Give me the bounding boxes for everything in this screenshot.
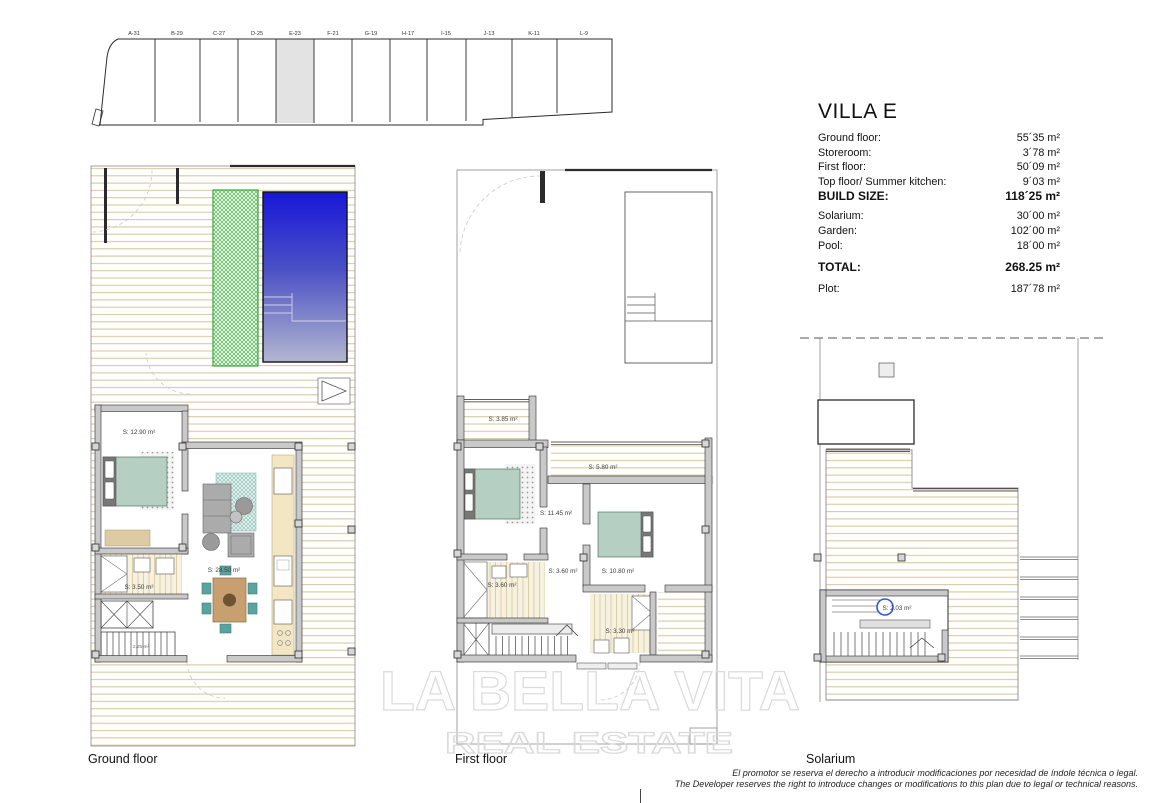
stairs (101, 632, 175, 656)
disclaimer-line-en: The Developer reserves the right to intr… (620, 779, 1138, 790)
spec-row: Plot:187´78 m² (818, 282, 1060, 297)
room-size-label: S: 3.60 m² (548, 568, 577, 575)
sink (492, 566, 506, 578)
shower (101, 556, 127, 592)
side-table (230, 511, 242, 523)
plot-label: H-17 (402, 31, 414, 37)
disclaimer: El promotor se reserva el derecho a intr… (620, 768, 1138, 789)
site-boundary (100, 39, 612, 125)
pillow (643, 536, 651, 552)
toilet (510, 564, 527, 577)
spec-value: 118´25 m² (1005, 189, 1060, 204)
spec-row-build-size: BUILD SIZE:118´25 m² (818, 189, 1060, 204)
watermark-line1: LA BELLA VITA (380, 659, 800, 722)
pergola-louvers (1020, 557, 1078, 659)
disclaimer-line-es: El promotor se reserva el derecho a intr… (620, 768, 1138, 779)
room-size-label: S: 12.90 m² (123, 429, 156, 436)
kitchen-sink (274, 556, 292, 586)
spec-value: 268.25 m² (1005, 260, 1060, 275)
side-deck (658, 592, 705, 655)
solarium-plan: S: 2.03 m² Solarium (800, 338, 1105, 766)
room-size-label: S: 11.45 m² (540, 510, 572, 517)
villa-title: VILLA E (818, 100, 1060, 124)
spec-value: 30´00 m² (1017, 209, 1060, 224)
chimney (879, 363, 894, 377)
ground-floor-plan: S: 12.90 m² S: 28.50 m² S: 3.50 m² 2.25 … (88, 166, 355, 766)
pool-void-steps (625, 293, 712, 321)
plot-label: I-15 (441, 31, 451, 37)
fridge (274, 468, 292, 494)
titleblock-border-tick (640, 789, 641, 803)
spec-row: Storeroom:3´78 m² (818, 146, 1060, 161)
gate-swing-arc (460, 176, 540, 252)
room-size-label: S: 3.30 m² (605, 628, 634, 635)
pillow (105, 482, 114, 499)
site-plan: A-31 B-29 C-27 D-25 E-23 F-21 G-19 H-17 … (92, 31, 612, 126)
spec-label: TOTAL: (818, 260, 861, 275)
plot-label: L-9 (580, 31, 588, 37)
room-size-label: S: 3.60 m² (487, 582, 516, 589)
plot-label-highlighted: E-23 (289, 31, 301, 37)
plot-label: D-25 (251, 31, 263, 37)
villa-e-plan-sheet: A-31 B-29 C-27 D-25 E-23 F-21 G-19 H-17 … (0, 0, 1170, 803)
plot-e23-highlight (276, 39, 314, 123)
lawn-area (213, 190, 258, 366)
garden-wall-stub (104, 168, 107, 243)
oven (274, 600, 292, 624)
spec-row: Ground floor:55´35 m² (818, 131, 1060, 146)
spec-label: Storeroom: (818, 146, 871, 161)
room-size-label: S: 28.50 m² (208, 567, 241, 574)
spec-label: Garden: (818, 224, 857, 239)
spec-row: Top floor/ Summer kitchen:9´03 m² (818, 175, 1060, 190)
terrace-railing (551, 442, 705, 444)
spec-value: 3´78 m² (1023, 146, 1060, 161)
room-size-label: S: 3.85 m² (488, 416, 517, 423)
armchair (228, 533, 254, 557)
spec-row: First floor:50´09 m² (818, 160, 1060, 175)
pillow (105, 461, 114, 478)
spec-label: Solarium: (818, 209, 864, 224)
pillow (465, 494, 473, 511)
plot-label: K-11 (528, 31, 539, 37)
room-size-label: S: 10.80 m² (602, 568, 635, 575)
pillow (643, 516, 651, 532)
floor-name-solarium: Solarium (806, 752, 855, 766)
shower (632, 596, 652, 630)
room-size-label: 2.25 m² (133, 644, 150, 650)
bench (105, 530, 150, 546)
sink (614, 638, 629, 653)
shower (463, 562, 487, 618)
summer-kitchen (818, 400, 914, 444)
room-size-label: S: 5.80 m² (588, 464, 617, 471)
plot-label: G-19 (365, 31, 377, 37)
watermark-line2: REAL ESTATE (445, 727, 733, 760)
floor-name-ground: Ground floor (88, 752, 157, 766)
table-centerpiece (223, 594, 236, 607)
terrace-right (551, 445, 705, 478)
room-size-label: S: 3.50 m² (124, 584, 153, 591)
spec-row: Garden:102´00 m² (818, 224, 1060, 239)
plot-label: F-21 (327, 31, 339, 37)
spec-label: Pool: (818, 239, 843, 254)
spec-rows: Ground floor:55´35 m² Storeroom:3´78 m² … (818, 131, 1060, 297)
spec-label: Plot: (818, 282, 840, 297)
spec-label: First floor: (818, 160, 866, 175)
pillow (465, 473, 473, 490)
spec-row: Solarium:30´00 m² (818, 209, 1060, 224)
plot-label: J-13 (484, 31, 495, 37)
plot-label: B-29 (171, 31, 183, 37)
pouf (203, 534, 220, 551)
spec-value: 50´09 m² (1017, 160, 1060, 175)
garden-wall-stub (176, 168, 179, 204)
plot-labels: A-31 B-29 C-27 D-25 E-23 F-21 G-19 H-17 … (128, 31, 588, 37)
spec-row: Pool:18´00 m² (818, 239, 1060, 254)
spec-value: 9´03 m² (1023, 175, 1060, 190)
toilet (594, 640, 609, 653)
stair-rail (860, 620, 930, 628)
spec-value: 18´00 m² (1017, 239, 1060, 254)
spec-label: Top floor/ Summer kitchen: (818, 175, 946, 190)
watermark: LA BELLA VITA REAL ESTATE (380, 659, 800, 760)
spec-value: 55´35 m² (1017, 131, 1060, 146)
wall-stub (540, 171, 545, 203)
spec-row-total: TOTAL:268.25 m² (818, 260, 1060, 275)
spec-panel: VILLA E Ground floor:55´35 m² Storeroom:… (818, 100, 1060, 297)
spec-value: 102´00 m² (1011, 224, 1060, 239)
spec-label: Ground floor: (818, 131, 881, 146)
plot-label: C-27 (213, 31, 225, 37)
sofa (203, 484, 231, 533)
sink (134, 558, 150, 572)
spec-value: 187´78 m² (1011, 282, 1060, 297)
room-size-label: S: 2.03 m² (882, 605, 911, 612)
pool-void-outline (625, 192, 712, 363)
spec-label: BUILD SIZE: (818, 189, 889, 204)
pool (263, 192, 347, 362)
plot-dividers (155, 39, 557, 123)
toilet (156, 558, 174, 574)
plot-label: A-31 (128, 31, 140, 37)
